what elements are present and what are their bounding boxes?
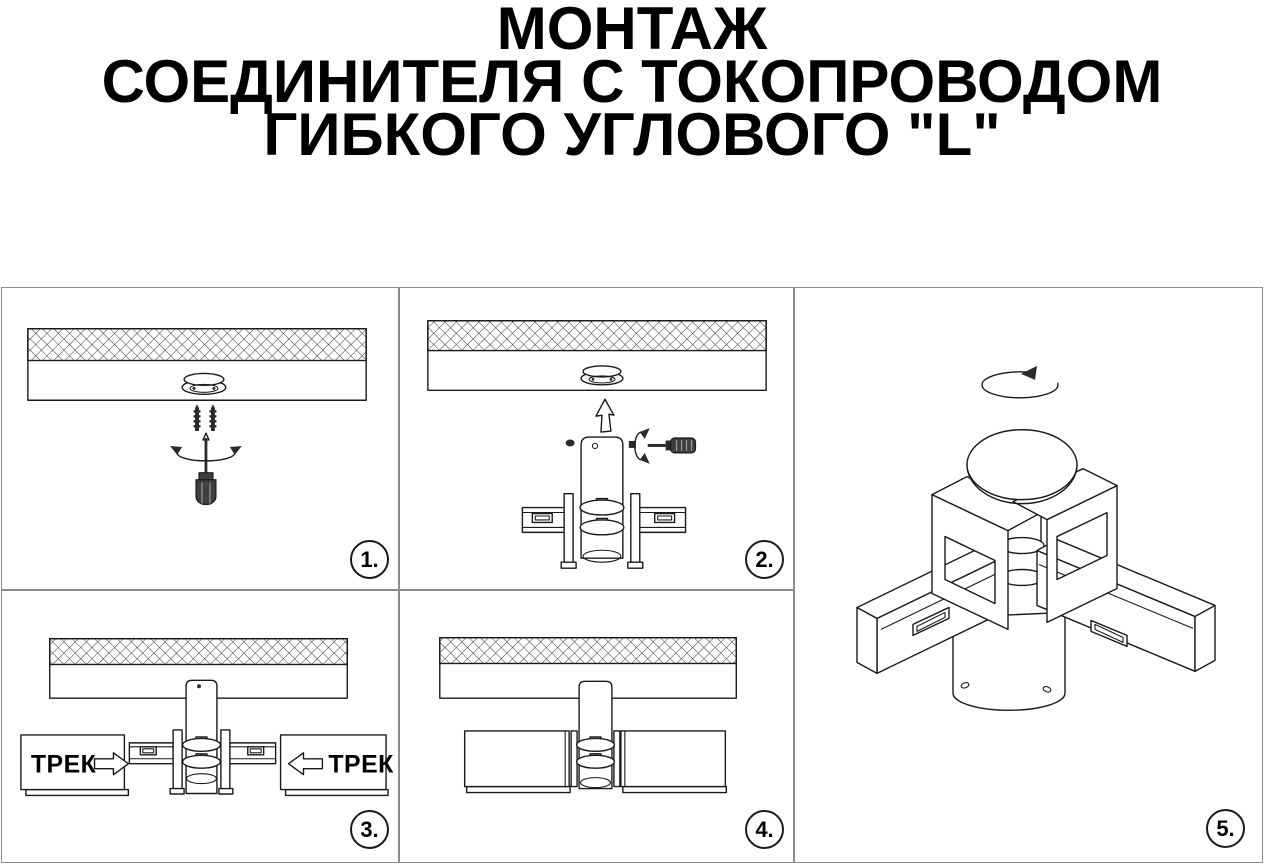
step-number: 5.: [1216, 816, 1234, 842]
panel-step-1: 1.: [1, 287, 399, 590]
track-segment-right: ТРЕК: [281, 735, 395, 796]
step-number: 3.: [360, 817, 378, 843]
step-number: 2.: [755, 547, 773, 573]
track-segment-left: ТРЕК: [21, 735, 128, 796]
rotate-arrow-icon: [635, 428, 650, 464]
panel-step-5: 5.: [794, 287, 1263, 863]
screw-icon: [209, 404, 216, 431]
rotate-arrow-icon: [982, 366, 1059, 398]
hatch-band: [50, 639, 347, 665]
step-1-drawing: [2, 288, 398, 589]
step-badge: 3.: [350, 810, 389, 849]
screwdriver-icon: [170, 433, 242, 505]
up-arrow-icon: [596, 399, 614, 432]
screwdriver-horizontal-icon: [629, 428, 696, 464]
diagram-grid: 1.: [1, 287, 1263, 863]
connector-body: [579, 681, 612, 788]
page-title: МОНТАЖ СОЕДИНИТЕЛЯ С ТОКОПРОВОДОМ ГИБКОГ…: [0, 2, 1264, 161]
hatch-band: [440, 638, 736, 664]
step-badge: 4.: [745, 810, 784, 849]
canopy-plate-icon: [581, 366, 623, 385]
track-shadow-edge: [286, 790, 388, 796]
step-number: 4.: [755, 817, 773, 843]
hatch-band: [28, 329, 366, 361]
track-label-right: ТРЕК: [328, 752, 394, 779]
track-shadow-edge: [467, 787, 570, 793]
step-5-drawing: [795, 288, 1262, 862]
step-4-drawing: [400, 591, 793, 862]
panel-step-2: 2.: [399, 287, 794, 590]
canopy-plate-icon: [182, 373, 226, 394]
track-bar-right: [230, 743, 276, 764]
set-screw-icon: [566, 439, 575, 446]
instruction-sheet: МОНТАЖ СОЕДИНИТЕЛЯ С ТОКОПРОВОДОМ ГИБКОГ…: [0, 0, 1264, 864]
hatch-band: [428, 321, 766, 351]
track-shadow-edge: [623, 787, 726, 793]
step-badge: 2.: [745, 540, 784, 579]
step-2-drawing: [400, 288, 793, 589]
track-bar-left: [522, 508, 564, 533]
screw-icon: [194, 404, 201, 431]
top-disc: [967, 430, 1077, 504]
track-bar-right: [639, 508, 686, 533]
panel-step-4: 4.: [399, 590, 794, 863]
connector-body: [566, 437, 623, 558]
track-segment-left: [465, 731, 570, 793]
step-badge: 1.: [350, 540, 389, 579]
track-shadow-edge: [26, 790, 128, 796]
track-label-left: ТРЕК: [31, 752, 97, 779]
panel-step-3: ТРЕК ТРЕК 3.: [1, 590, 399, 863]
step-3-drawing: ТРЕК ТРЕК: [2, 591, 398, 862]
step-badge: 5.: [1206, 809, 1245, 848]
title-line-3: ГИБКОГО УГЛОВОГО "L": [0, 108, 1264, 161]
track-segment-right: [621, 731, 726, 793]
step-number: 1.: [360, 547, 378, 573]
track-bar-left: [129, 743, 173, 764]
